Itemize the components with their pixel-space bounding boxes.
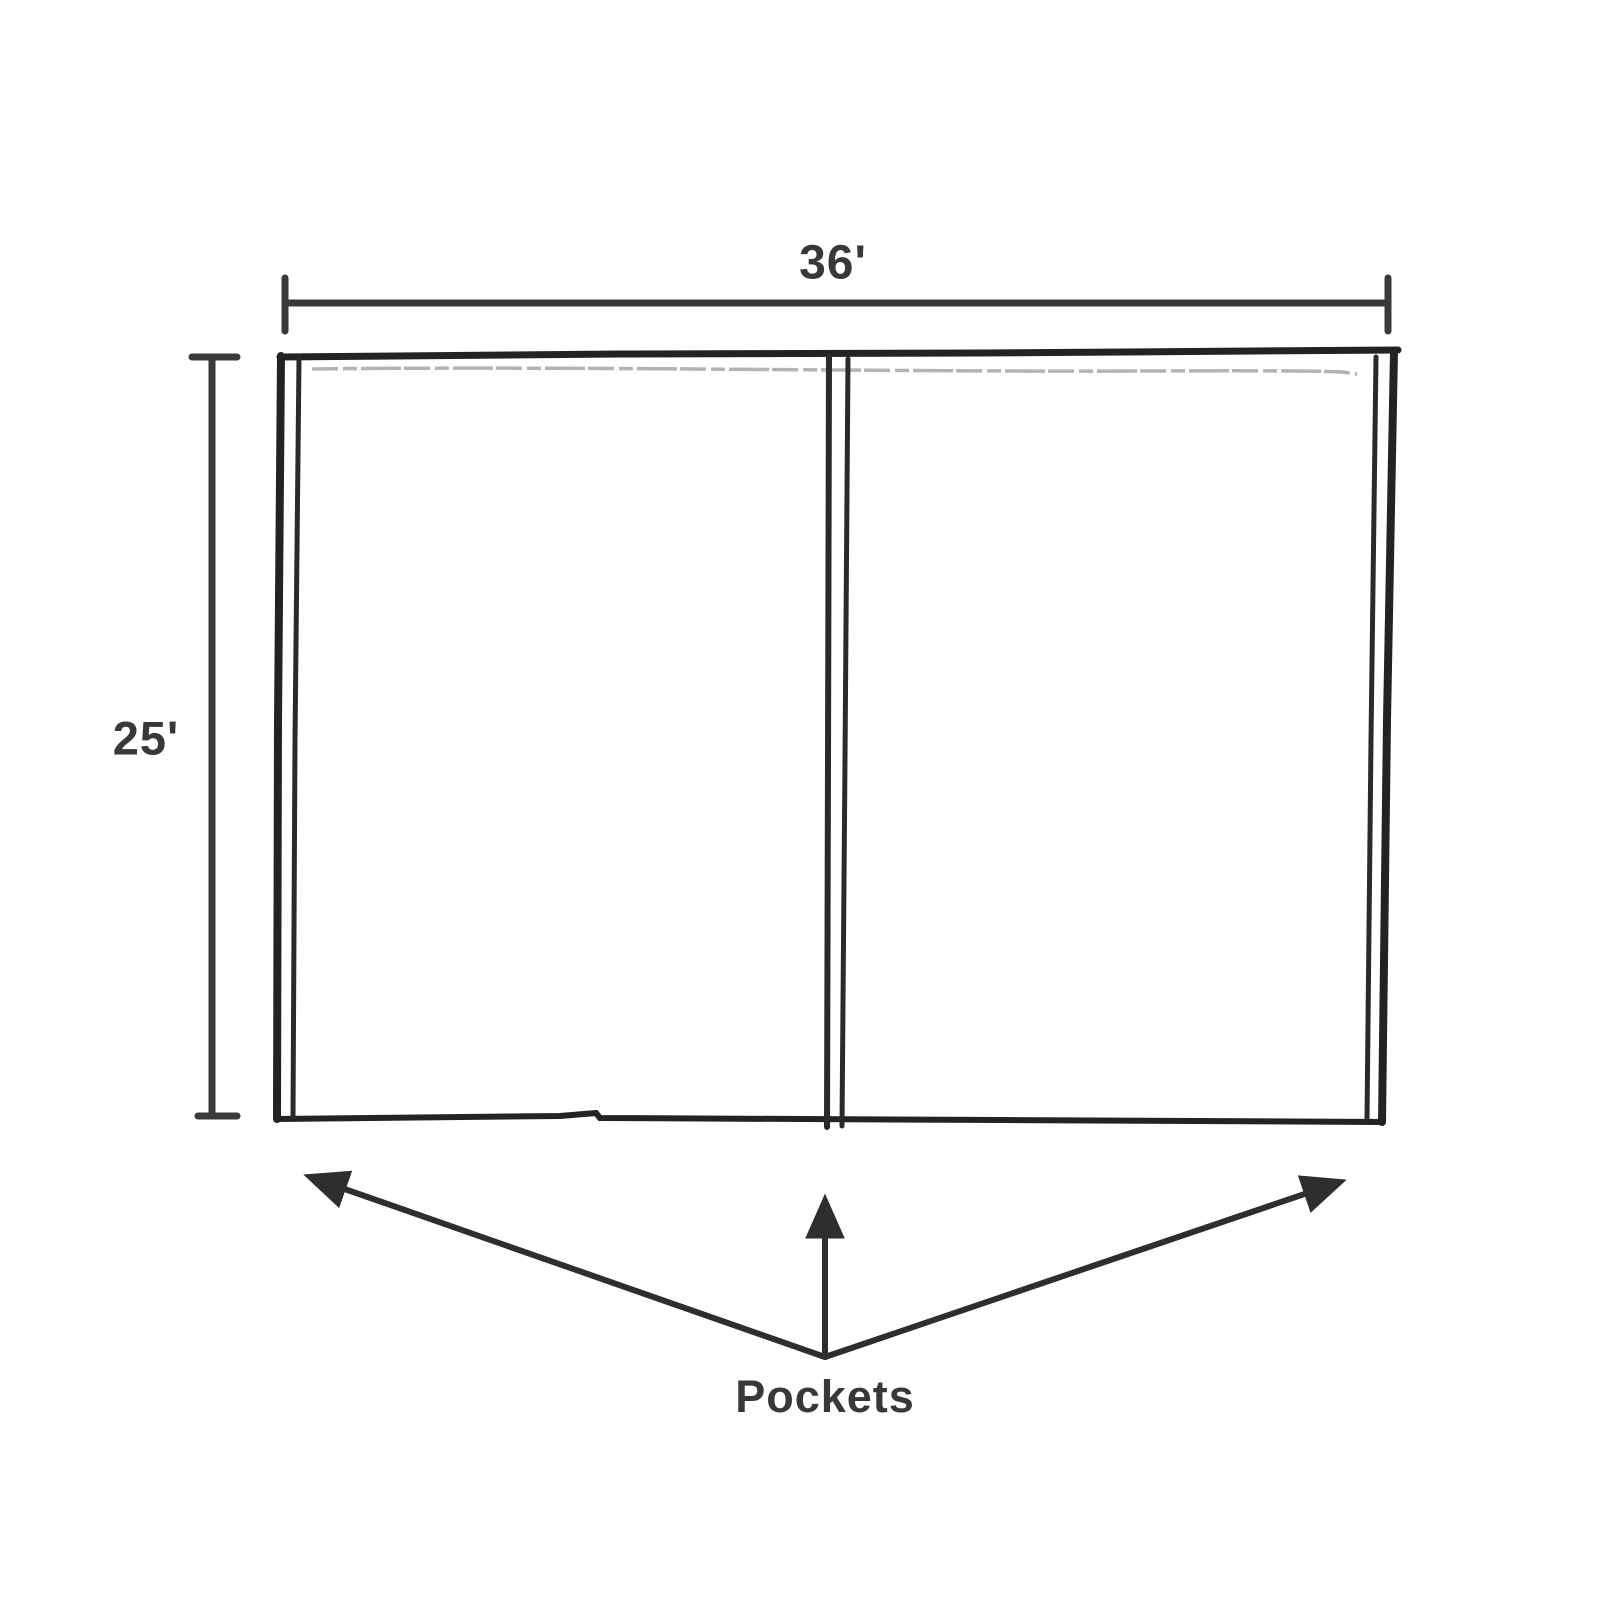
pocket-arrows	[316, 1179, 1334, 1357]
cover-outline	[277, 350, 1398, 1122]
sketch-faint-top-line	[312, 368, 1357, 374]
height-dimension-label: 25'	[113, 711, 179, 766]
left-pocket-seam	[293, 359, 299, 1117]
sketch-canvas: 36' 25' Pockets	[0, 0, 1600, 1600]
width-dimension-label: 36'	[799, 236, 867, 291]
pocket-seams	[293, 356, 1376, 1127]
pockets-callout-label: Pockets	[735, 1371, 915, 1423]
center-pocket-seam-left	[827, 356, 829, 1127]
height-dimension-line	[192, 357, 237, 1116]
center-pocket-seam-right	[842, 359, 848, 1126]
pocket-arrow-right	[825, 1184, 1334, 1357]
right-pocket-seam	[1367, 357, 1376, 1119]
pocket-arrow-left	[316, 1179, 825, 1357]
